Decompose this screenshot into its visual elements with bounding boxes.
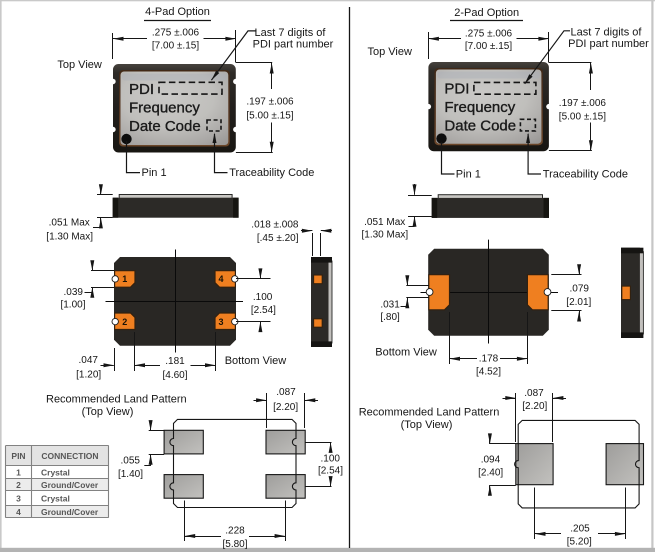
svg-text:3: 3 [16, 494, 21, 504]
svg-text:4-Pad Option: 4-Pad Option [145, 6, 210, 18]
svg-text:[2.54]: [2.54] [318, 466, 343, 477]
svg-text:[7.00 ±.15]: [7.00 ±.15] [465, 41, 512, 52]
svg-text:2: 2 [16, 480, 21, 490]
svg-text:.275 ±.006: .275 ±.006 [465, 28, 513, 39]
svg-text:[1.20]: [1.20] [76, 369, 101, 380]
svg-text:Traceability Code: Traceability Code [229, 167, 314, 179]
svg-text:[2.20]: [2.20] [273, 402, 298, 413]
svg-text:.018 ±.008: .018 ±.008 [251, 219, 299, 230]
svg-text:.181: .181 [165, 356, 185, 367]
svg-text:Last 7 digits of: Last 7 digits of [571, 26, 643, 38]
svg-text:4: 4 [16, 507, 21, 517]
svg-text:(Top View): (Top View) [82, 406, 134, 418]
svg-text:[5.80]: [5.80] [222, 539, 247, 550]
svg-text:Recommended Land Pattern: Recommended Land Pattern [46, 393, 187, 405]
svg-text:Crystal: Crystal [41, 467, 70, 477]
svg-text:[7.00 ±.15]: [7.00 ±.15] [152, 40, 199, 51]
svg-text:.275 ±.006: .275 ±.006 [152, 28, 200, 39]
svg-text:CONNECTION: CONNECTION [41, 451, 98, 461]
svg-text:2-Pad Option: 2-Pad Option [454, 7, 519, 19]
svg-text:.039: .039 [64, 287, 84, 298]
svg-text:.197 ±.006: .197 ±.006 [246, 96, 294, 107]
svg-text:.100: .100 [321, 453, 341, 464]
svg-text:Pin 1: Pin 1 [142, 167, 167, 179]
svg-text:Frequency: Frequency [129, 100, 200, 117]
svg-text:4: 4 [218, 274, 223, 284]
svg-text:[1.00]: [1.00] [60, 300, 85, 311]
svg-text:.047: .047 [79, 355, 99, 366]
svg-text:Recommended Land Pattern: Recommended Land Pattern [359, 407, 500, 419]
svg-text:[.45 ±.20]: [.45 ±.20] [257, 233, 299, 244]
svg-text:[5.00 ±.15]: [5.00 ±.15] [559, 111, 606, 122]
svg-text:Date Code: Date Code [444, 118, 516, 135]
svg-text:[2.40]: [2.40] [478, 468, 503, 479]
svg-text:(Top View): (Top View) [401, 419, 453, 431]
svg-text:.094: .094 [481, 455, 501, 466]
svg-text:[1.30 Max]: [1.30 Max] [361, 229, 408, 240]
svg-text:.087: .087 [276, 387, 296, 398]
svg-text:.178: .178 [479, 353, 499, 364]
svg-text:PDI part number: PDI part number [568, 38, 649, 50]
svg-text:Top View: Top View [368, 46, 412, 58]
svg-text:1: 1 [122, 274, 127, 284]
svg-text:PDI: PDI [444, 81, 469, 98]
svg-text:[5.00 ±.15]: [5.00 ±.15] [246, 111, 293, 122]
svg-text:[4.52]: [4.52] [476, 367, 501, 378]
svg-text:[.80]: [.80] [380, 312, 400, 323]
svg-text:PDI: PDI [129, 81, 154, 98]
svg-text:Ground/Cover: Ground/Cover [41, 507, 99, 517]
svg-text:[5.20]: [5.20] [567, 536, 592, 547]
svg-text:[2.54]: [2.54] [251, 305, 276, 316]
svg-text:Crystal: Crystal [41, 494, 70, 504]
svg-text:.087: .087 [524, 388, 544, 399]
svg-text:[1.30 Max]: [1.30 Max] [46, 231, 93, 242]
svg-text:PIN: PIN [11, 451, 25, 461]
svg-text:[1.40]: [1.40] [118, 469, 143, 480]
svg-text:.205: .205 [570, 523, 590, 534]
svg-text:1: 1 [16, 467, 21, 477]
svg-text:.051 Max: .051 Max [49, 218, 90, 229]
svg-text:.197 ±.006: .197 ±.006 [559, 98, 607, 109]
svg-text:Ground/Cover: Ground/Cover [41, 480, 99, 490]
svg-text:Last 7 digits of: Last 7 digits of [255, 27, 327, 39]
svg-text:.055: .055 [121, 456, 141, 467]
svg-text:.100: .100 [253, 292, 273, 303]
svg-text:Frequency: Frequency [444, 99, 515, 116]
svg-text:[2.01]: [2.01] [566, 297, 591, 308]
svg-text:2: 2 [122, 317, 127, 327]
svg-text:3: 3 [218, 317, 223, 327]
svg-text:[4.60]: [4.60] [162, 370, 187, 381]
svg-text:.228: .228 [225, 526, 245, 537]
svg-text:Top View: Top View [57, 59, 101, 71]
svg-text:Pin 1: Pin 1 [456, 168, 481, 180]
svg-text:Bottom View: Bottom View [225, 355, 287, 367]
svg-text:Traceability Code: Traceability Code [543, 168, 628, 180]
svg-text:.079: .079 [570, 284, 590, 295]
svg-text:[2.20]: [2.20] [522, 401, 547, 412]
svg-text:Date Code: Date Code [129, 118, 201, 135]
svg-text:PDI part number: PDI part number [253, 39, 334, 51]
svg-text:.051 Max: .051 Max [364, 217, 405, 228]
svg-text:Bottom View: Bottom View [375, 347, 437, 359]
svg-text:.031: .031 [380, 300, 400, 311]
